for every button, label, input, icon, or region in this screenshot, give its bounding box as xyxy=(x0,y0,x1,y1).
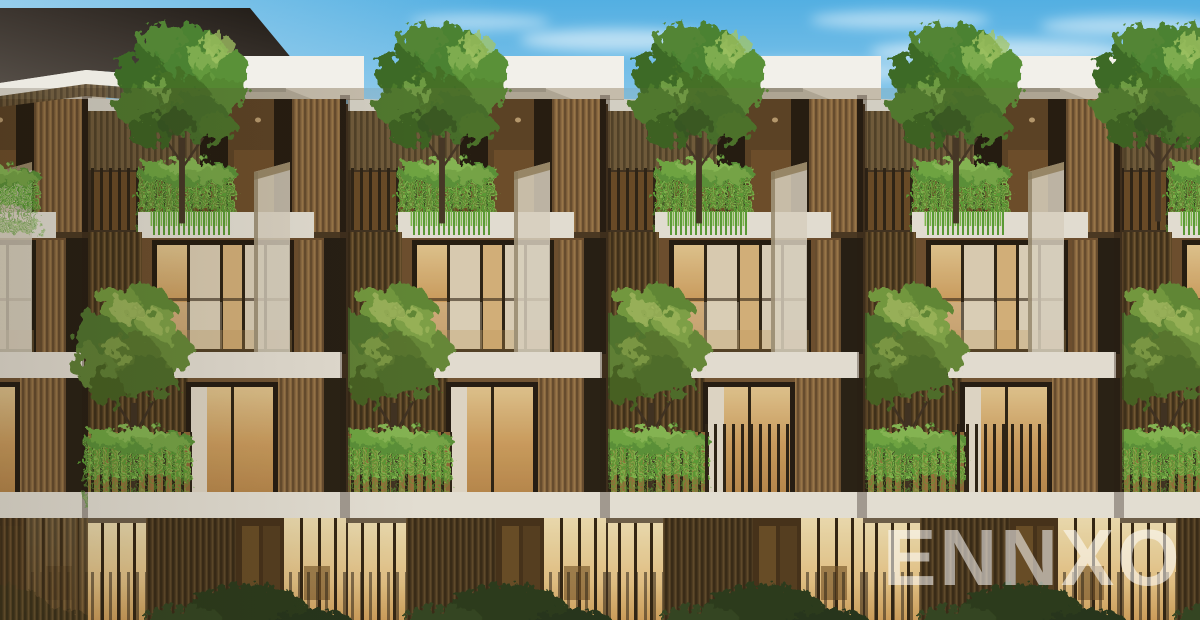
svg-text:ENNXO: ENNXO xyxy=(883,513,1183,602)
